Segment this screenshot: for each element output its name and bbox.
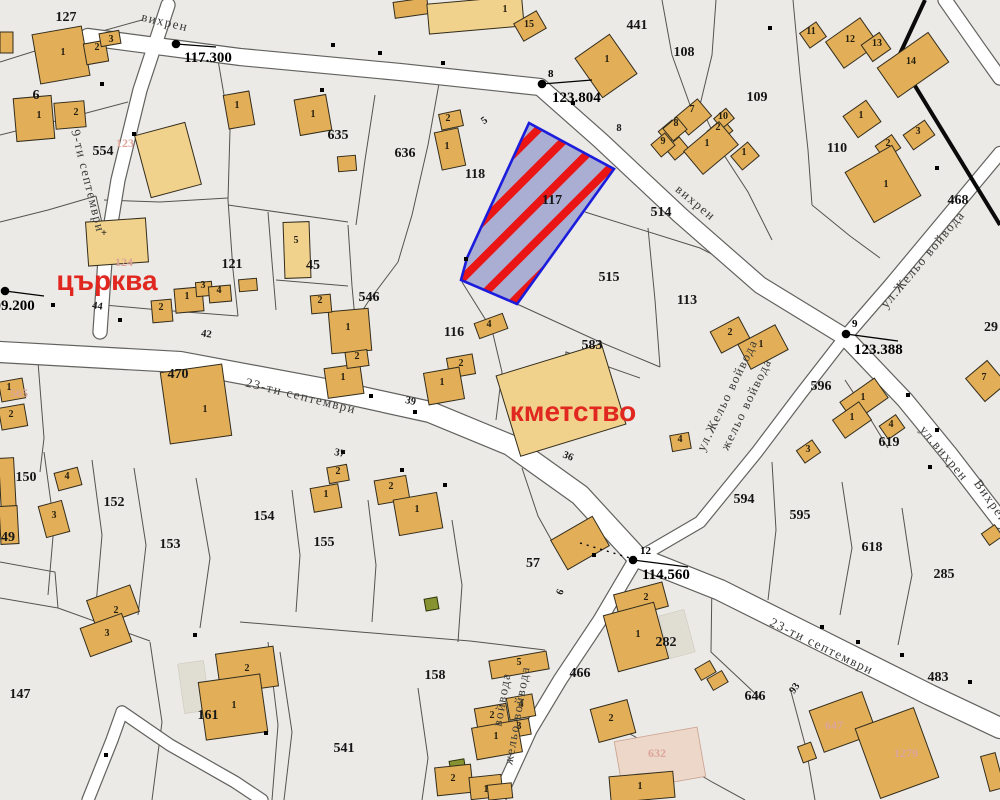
building [424, 597, 439, 611]
parcel-number: 113 [677, 293, 697, 308]
parcel-number: 635 [328, 128, 349, 143]
street-name: ул.вихрен [917, 422, 972, 484]
parcel-boundary [0, 196, 96, 222]
survey-dot [51, 303, 55, 307]
building [0, 458, 16, 514]
cadastral-map: 117.300123.8048123.3889114.56012109.200 … [0, 0, 1000, 800]
survey-dot [906, 393, 910, 397]
parcel-boundary [452, 520, 462, 642]
parcel-number: 109 [747, 90, 768, 105]
survey-dot [928, 465, 932, 469]
parcel-number: 546 [359, 290, 380, 305]
building-number: 2 [159, 302, 164, 313]
building-number: 2 [716, 122, 721, 133]
building-number: 1 [440, 377, 445, 388]
building-number: 1 [605, 54, 610, 65]
building-number: 8 [674, 118, 679, 129]
survey-dot [443, 483, 447, 487]
survey-dot [264, 731, 268, 735]
building-number: 1 [346, 322, 351, 333]
building-number: 1 [232, 700, 237, 711]
elevation-point-number: 8 [548, 68, 554, 80]
building-number: 3 [105, 628, 110, 639]
elevation-value: 114.560 [642, 567, 690, 583]
parcel-boundary [0, 598, 58, 608]
building-number: 3 [916, 126, 921, 137]
building [135, 122, 202, 197]
parcel-number: 636 [395, 146, 416, 161]
building-number: 1 [203, 404, 208, 415]
boundary-measure: 42 [200, 328, 212, 340]
parcel-boundary [840, 482, 852, 615]
parcel-number: 596 [811, 379, 832, 394]
parcel-boundary [368, 500, 376, 622]
building-number: 1 [37, 110, 42, 121]
boundary-measure: 93 [787, 681, 802, 696]
building-number: 10 [718, 111, 728, 122]
building-number: 1 [61, 47, 66, 58]
building-number: 1 [484, 784, 489, 795]
parcel-number: 466 [570, 666, 591, 681]
building [0, 404, 28, 430]
building [575, 34, 637, 97]
parcel-number: 154 [254, 509, 275, 524]
survey-dot [378, 51, 382, 55]
parcel-boundary [150, 642, 162, 800]
parcel-number: 108 [674, 45, 695, 60]
parcel-number: 153 [160, 537, 181, 552]
building-number: 2 [95, 42, 100, 53]
boundary-measure: 36 [561, 450, 575, 464]
building-number: 4 [65, 471, 70, 482]
parcel-number: 594 [734, 492, 755, 507]
parcel-number: 29 [984, 320, 998, 335]
parcel-boundary [228, 205, 348, 222]
parcel-number: 110 [827, 141, 847, 156]
building-number: 2 [114, 605, 119, 616]
survey-dot [193, 633, 197, 637]
parcel-number: 57 [526, 556, 540, 571]
building-number: 13 [872, 38, 882, 49]
building-number: 14 [906, 56, 916, 67]
parcel-number: 595 [790, 508, 811, 523]
survey-dot [856, 640, 860, 644]
parcel-number: 470 [168, 367, 189, 382]
building-number: 2 [728, 327, 733, 338]
parcel-number: 282 [656, 635, 677, 650]
landmark-label: кметство [510, 396, 637, 427]
building-number: 2 [389, 481, 394, 492]
building-number: 4 [889, 419, 894, 430]
building-number: 2 [74, 107, 79, 118]
parcel-number: 152 [104, 495, 125, 510]
old-parcel-number: 632 [648, 746, 666, 760]
survey-dot [441, 61, 445, 65]
building-number: 1 [185, 291, 190, 302]
elevation-marker-icon [629, 556, 638, 565]
building-number: 2 [318, 295, 323, 306]
building-number: 2 [609, 713, 614, 724]
building-number: 1 [494, 731, 499, 742]
parcel-number: 118 [465, 167, 485, 182]
parcel-boundary [240, 622, 545, 650]
elevation-leader-line [542, 80, 592, 84]
elevation-leader-line [5, 291, 44, 296]
parcel-number: 619 [879, 435, 900, 450]
building [54, 101, 86, 130]
parcel-number: 618 [862, 540, 883, 555]
survey-dot [100, 82, 104, 86]
building-number: 1 [742, 147, 747, 158]
survey-dot [104, 753, 108, 757]
building-number: 1 [415, 504, 420, 515]
survey-dot [900, 653, 904, 657]
elevation-value: 109.200 [0, 298, 35, 314]
building-number: 7 [690, 104, 695, 115]
building-number: 11 [806, 26, 815, 37]
building-number: 1 [324, 489, 329, 500]
survey-dot [320, 88, 324, 92]
building-number: 9 [661, 136, 666, 147]
parcel-number: 117 [542, 193, 562, 208]
parcel-number: 483 [928, 670, 949, 685]
boundary-measure: 5 [479, 115, 490, 127]
building-number: 2 [459, 358, 464, 369]
building-number: 1 [7, 382, 12, 393]
elevation-marker-icon [1, 287, 10, 296]
parcel-number: 127 [56, 10, 77, 25]
parcel-number: 155 [314, 535, 335, 550]
parcel-number: 158 [425, 668, 446, 683]
building-number: 2 [336, 466, 341, 477]
building-number: 1 [861, 392, 866, 403]
survey-dot [592, 553, 596, 557]
survey-dot [331, 43, 335, 47]
building-number: 3 [806, 444, 811, 455]
building-number: 15 [524, 19, 534, 30]
building-number: 2 [886, 138, 891, 149]
parcel-number: 468 [948, 193, 969, 208]
boundary-measure: 6 [555, 588, 567, 597]
parcel-number: 515 [599, 270, 620, 285]
boundary-measure: 37 [333, 447, 346, 460]
old-parcel-number: 565 [10, 386, 28, 400]
old-parcel-number: 647 [825, 718, 843, 732]
parcel-number: 554 [93, 144, 114, 159]
building-number: 2 [245, 663, 250, 674]
building [0, 32, 13, 53]
building-number: 3 [52, 510, 57, 521]
building [981, 753, 1000, 792]
building-number: 1 [884, 179, 889, 190]
building [337, 155, 356, 172]
elevation-marker-icon [538, 80, 547, 89]
building [439, 110, 464, 130]
parcel-boundary [418, 688, 428, 800]
parcel-number: 49 [1, 530, 15, 545]
elevation-marker-icon [172, 40, 181, 49]
parcel-boundary [356, 95, 375, 225]
building-number: 2 [644, 592, 649, 603]
parcel-boundary [768, 462, 776, 600]
parcel-number: 441 [627, 18, 648, 33]
building [434, 128, 465, 170]
boundary-measure: 39 [404, 395, 417, 408]
building-number: 3 [109, 34, 114, 45]
parcel-number: 150 [16, 470, 37, 485]
building-number: 5 [294, 235, 299, 246]
building-number: 2 [355, 351, 360, 362]
building [487, 783, 512, 800]
building-number: 1 [638, 781, 643, 792]
survey-dot [968, 680, 972, 684]
old-parcel-number: 123 [116, 136, 134, 150]
parcel-number: 161 [198, 708, 219, 723]
building-number: 2 [9, 409, 14, 420]
elevation-marker-icon [842, 330, 851, 339]
parcel-boundary [462, 282, 502, 420]
parcel-boundary [38, 362, 44, 472]
parcel-number: 6 [33, 88, 40, 103]
elevation-value: 123.388 [854, 342, 903, 358]
building-number: 1 [445, 141, 450, 152]
building-number: 2 [451, 773, 456, 784]
street-name: ул.Жельо войвода [877, 207, 967, 311]
parcel-boundary [398, 78, 440, 262]
building-number: 1 [636, 629, 641, 640]
building-number: 4 [217, 285, 222, 296]
parcel-number: 646 [745, 689, 766, 704]
landmark-label: църква [56, 265, 158, 296]
survey-dot [464, 257, 468, 261]
building [393, 0, 429, 18]
building-number: 1 [705, 138, 710, 149]
building [798, 742, 817, 763]
survey-dot [935, 166, 939, 170]
boundary-measure: 8 [616, 123, 621, 134]
parcel-boundary [134, 468, 146, 615]
building-number: 1 [341, 372, 346, 383]
building-number: 3 [201, 280, 206, 291]
building-number: 1 [850, 412, 855, 423]
building-number: 7 [982, 372, 987, 383]
parcel-number: 116 [444, 325, 464, 340]
building [239, 278, 258, 292]
parcel-number: 541 [334, 741, 355, 756]
building [981, 525, 1000, 546]
building-number: 2 [446, 113, 451, 124]
building-number: 1 [311, 109, 316, 120]
parcel-boundary [280, 652, 292, 800]
building-number: 1 [503, 4, 508, 15]
map-viewport: 117.300123.8048123.3889114.56012109.200 … [0, 0, 1000, 800]
survey-dot [400, 468, 404, 472]
street-lane-ne [945, 0, 1000, 78]
building-number: 12 [845, 34, 855, 45]
parcel-number: 583 [582, 338, 603, 353]
survey-dot [820, 625, 824, 629]
parcel-number: 45 [306, 258, 320, 273]
parcel-boundary [700, 0, 716, 105]
old-parcel-number: 1279 [894, 746, 918, 760]
building [427, 0, 524, 34]
survey-dot [413, 410, 417, 414]
parcel-boundary [898, 508, 912, 645]
elevation-value: 117.300 [184, 50, 232, 66]
building-number: 1 [859, 110, 864, 121]
building-number: 4 [487, 319, 492, 330]
survey-dot [768, 26, 772, 30]
parcel-boundary [292, 490, 300, 612]
parcel-number: 121 [222, 257, 243, 272]
parcel-number: 147 [10, 687, 31, 702]
survey-dot [369, 394, 373, 398]
building-number: 1 [235, 100, 240, 111]
parcel-number: 514 [651, 205, 672, 220]
elevation-value: 123.804 [552, 90, 601, 106]
survey-dot [118, 318, 122, 322]
parcel-boundary [276, 280, 348, 286]
parcel-number: 285 [934, 567, 955, 582]
street-name: 23-ти септември [768, 614, 877, 677]
parcel-boundary [196, 478, 210, 628]
building-number: 4 [678, 434, 683, 445]
parcel-boundary [92, 460, 102, 605]
elevation-point-number: 12 [640, 545, 652, 557]
parcel-boundary [268, 212, 276, 310]
parcel-boundary [648, 228, 660, 367]
elevation-point-number: 9 [852, 318, 858, 330]
